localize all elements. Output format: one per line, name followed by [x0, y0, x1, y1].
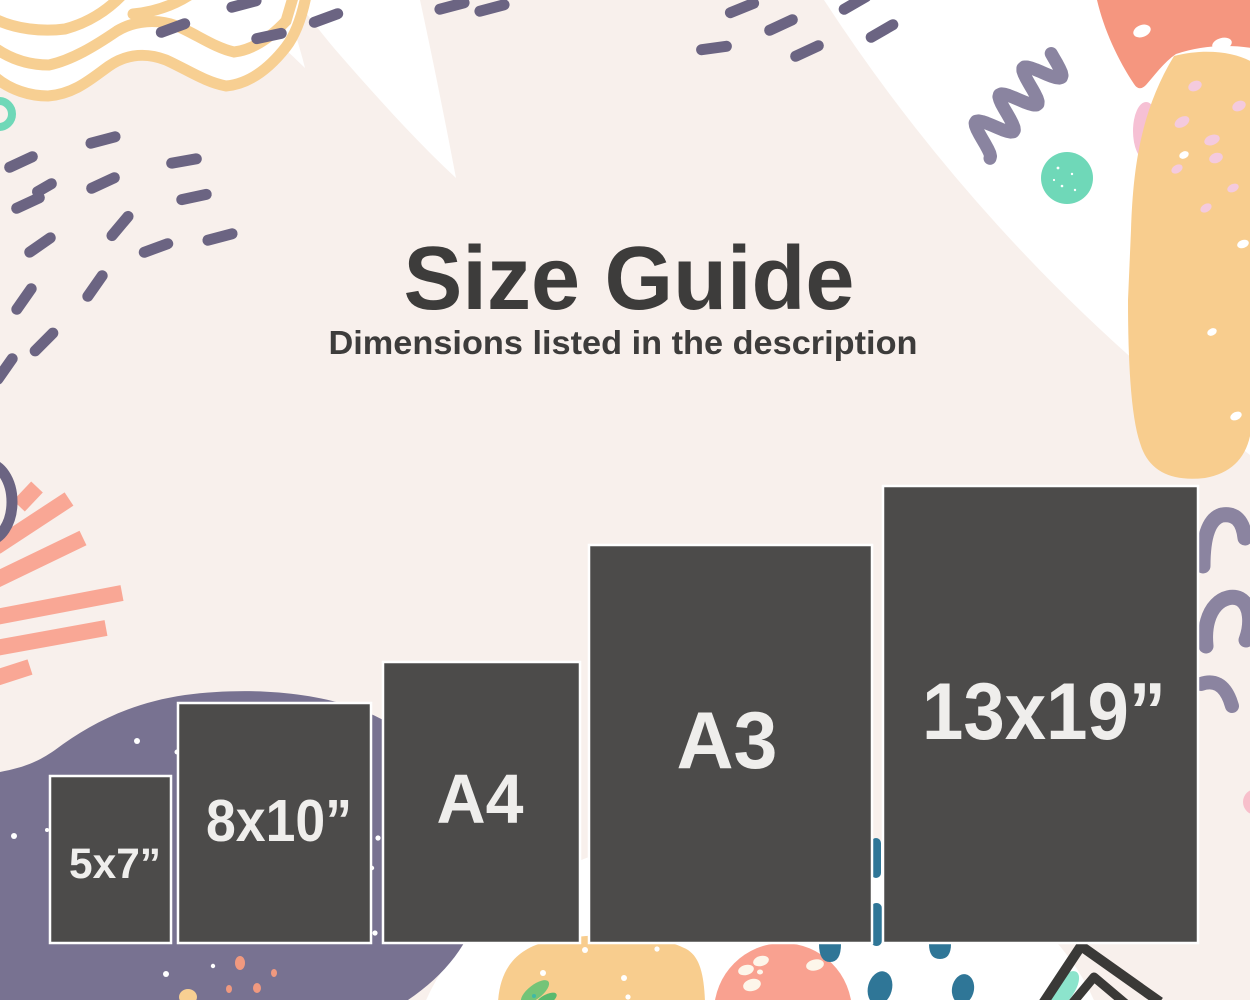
svg-text:A3: A3 [677, 696, 778, 786]
svg-text:Dimensions listed in the descr: Dimensions listed in the description [329, 324, 918, 361]
svg-text:8x10”: 8x10” [206, 788, 352, 854]
svg-text:Size Guide: Size Guide [404, 229, 855, 329]
svg-text:A4: A4 [437, 760, 524, 838]
svg-text:13x19”: 13x19” [922, 667, 1166, 757]
svg-text:5x7”: 5x7” [69, 840, 161, 888]
